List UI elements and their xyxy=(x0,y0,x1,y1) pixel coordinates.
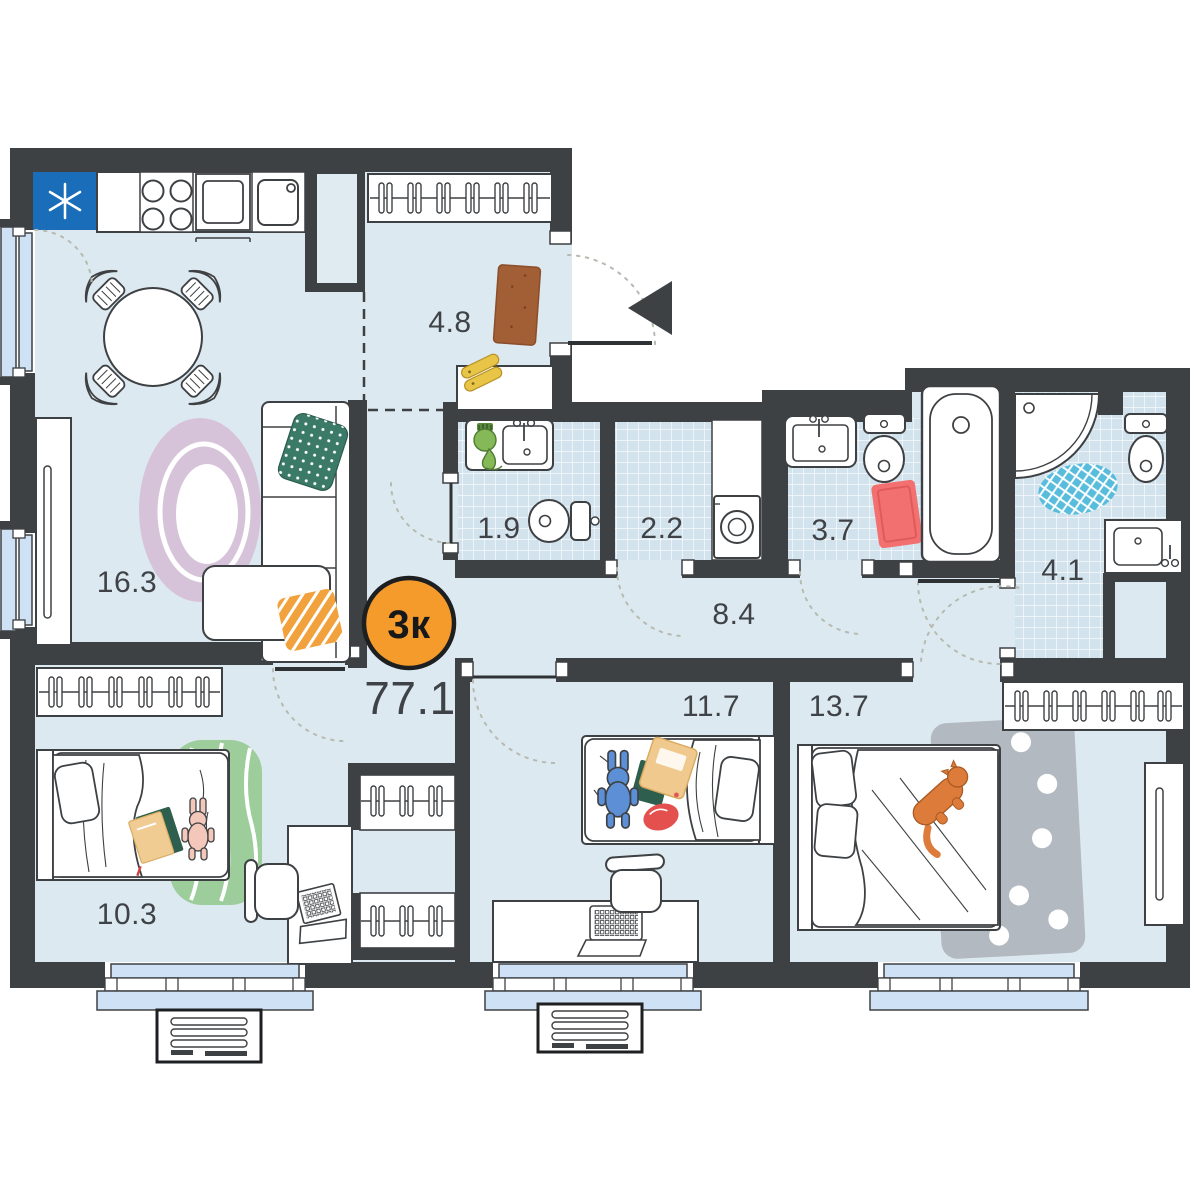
hallway-rug xyxy=(493,265,540,346)
washing-machine xyxy=(714,496,760,558)
wall-closet2-bottom xyxy=(348,948,470,960)
bedroom-master-wardrobe xyxy=(1003,682,1184,730)
kitchen-sink xyxy=(252,172,305,232)
window-left-2 xyxy=(0,521,32,639)
bedroom-middle-bed xyxy=(582,736,775,844)
wall-bedrooms-1-2 xyxy=(455,658,470,962)
bathroom-family-rug xyxy=(871,479,923,549)
badge-label: 3к xyxy=(387,603,431,647)
pillow xyxy=(814,803,858,858)
ac-unit-2 xyxy=(538,1004,642,1052)
dresser xyxy=(1145,763,1184,925)
closet-upper xyxy=(360,775,455,830)
window-left-1 xyxy=(0,219,32,385)
room-label-shower-room: 4.1 xyxy=(1041,554,1084,587)
closet-lower xyxy=(360,893,455,948)
entrance-arrow-icon xyxy=(628,281,672,335)
room-label-laundry: 2.2 xyxy=(640,512,683,545)
bedroom-small-wardrobe xyxy=(37,668,222,716)
wall-top xyxy=(10,148,572,172)
apartment-type-badge: 3к xyxy=(364,578,454,668)
room-label-bathroom-family: 3.7 xyxy=(811,514,854,547)
room-label-hallway: 4.8 xyxy=(428,306,471,339)
wall-corridor-top-2 xyxy=(682,560,800,578)
wall-left-3 xyxy=(10,627,35,988)
room-label-corridor: 8.4 xyxy=(712,598,755,631)
wall-tub-shower xyxy=(1000,388,1015,560)
tall-cabinet xyxy=(36,418,71,645)
wall-bath-family-top xyxy=(762,390,912,417)
wall-bottom-3 xyxy=(693,962,878,988)
bathroom-family-toilet xyxy=(864,414,905,482)
wall-shower-toilet-stub xyxy=(1098,392,1123,415)
pillow xyxy=(811,750,857,808)
wall-bath-guest-laundry xyxy=(600,422,615,560)
bathroom-guest-toilet xyxy=(529,500,599,542)
desk-chair xyxy=(606,854,665,912)
wall-corridor-bottom-2 xyxy=(556,658,913,682)
room-label-bedroom-small: 10.3 xyxy=(97,898,157,931)
hallway-wardrobe xyxy=(368,174,552,222)
duct-inset xyxy=(317,174,357,283)
bedroom-master-bed xyxy=(798,745,1000,930)
wall-closet1-top xyxy=(348,763,470,775)
bathtub xyxy=(922,386,1000,562)
bathroom-family-sink xyxy=(785,416,856,467)
room-label-living-kitchen: 16.3 xyxy=(97,566,157,599)
desk-chair xyxy=(245,860,298,922)
wall-left-2 xyxy=(10,373,35,533)
wall-bottom-1 xyxy=(10,962,105,988)
room-label-bedroom-master: 13.7 xyxy=(809,690,869,723)
pillow xyxy=(714,756,760,823)
window-bottom-3 xyxy=(870,964,1088,1010)
bedroom-small-bed xyxy=(37,750,229,880)
wall-left-1 xyxy=(10,148,35,230)
wall-bottom-2 xyxy=(305,962,493,988)
laundry-room xyxy=(712,420,762,560)
shower-room-toilet xyxy=(1125,414,1167,482)
ac-unit-1 xyxy=(157,1010,261,1062)
stove xyxy=(140,172,193,232)
window-bottom-1 xyxy=(97,964,313,1010)
wall-corridor-top-1 xyxy=(455,560,617,578)
floorplan-page: 16.3 4.8 1.9 2.2 3.7 4.1 8.4 10.3 11.7 1… xyxy=(0,0,1200,1200)
room-label-bathroom-guest: 1.9 xyxy=(477,512,520,545)
floorplan-canvas: 16.3 4.8 1.9 2.2 3.7 4.1 8.4 10.3 11.7 1… xyxy=(0,0,1200,1200)
room-label-bedroom-middle: 11.7 xyxy=(682,690,740,723)
wall-nook-left xyxy=(1103,573,1115,658)
cabinet-handle xyxy=(44,466,51,618)
wall-corridor-bottom-3 xyxy=(1000,658,1166,682)
bathroom-guest-sink xyxy=(466,420,553,470)
vanity-sink xyxy=(1105,520,1182,573)
total-area-label: 77.1 xyxy=(364,672,456,724)
wall-bath-guest-left-1 xyxy=(443,402,458,483)
